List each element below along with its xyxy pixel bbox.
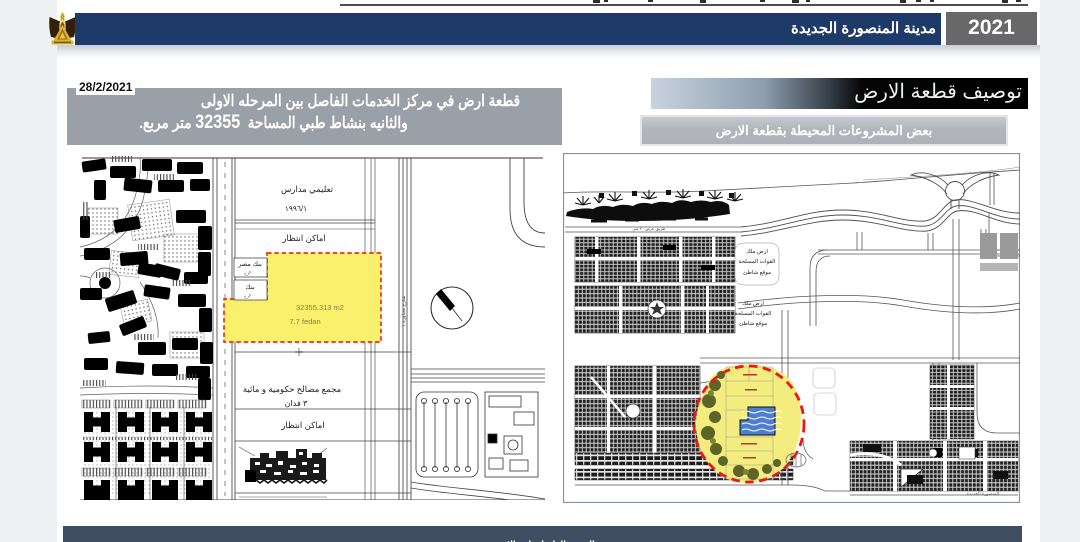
svg-text:ارض ملك: ارض ملك: [742, 300, 764, 307]
svg-text:ارض ملك: ارض ملك: [746, 248, 768, 255]
svg-text:١٩٩٦/١: ١٩٩٦/١: [285, 204, 307, 213]
svg-text:٣ فدان: ٣ فدان: [285, 399, 308, 408]
svg-text:القوات المسلحة: القوات المسلحة: [739, 258, 776, 265]
svg-text:بنك مصر: بنك مصر: [237, 260, 262, 268]
svg-text:اماكن انتظار: اماكن انتظار: [280, 420, 324, 431]
svg-text:32355.313 m2: 32355.313 m2: [296, 303, 344, 312]
svg-text:موقع شاطئ: موقع شاطئ: [743, 269, 771, 276]
svg-text:شارع مجاورة ١: شارع مجاورة ١: [401, 296, 407, 327]
svg-text:7.7 fedan: 7.7 fedan: [289, 317, 320, 326]
svg-text:موقع شاطئ: موقع شاطئ: [739, 320, 767, 327]
svg-text:طريق عرض ٢٠ متر: طريق عرض ٢٠ متر: [632, 226, 665, 231]
svg-text:القوات المسلحة: القوات المسلحة: [735, 310, 772, 317]
svg-text:اماكن انتظار: اماكن انتظار: [281, 233, 325, 244]
svg-text:مجمع مصالح حكومية و مائية: مجمع مصالح حكومية و مائية: [243, 384, 342, 395]
svg-text:بنك: بنك: [245, 283, 254, 291]
svg-text:تعليمي مدارس: تعليمي مدارس: [281, 184, 334, 195]
